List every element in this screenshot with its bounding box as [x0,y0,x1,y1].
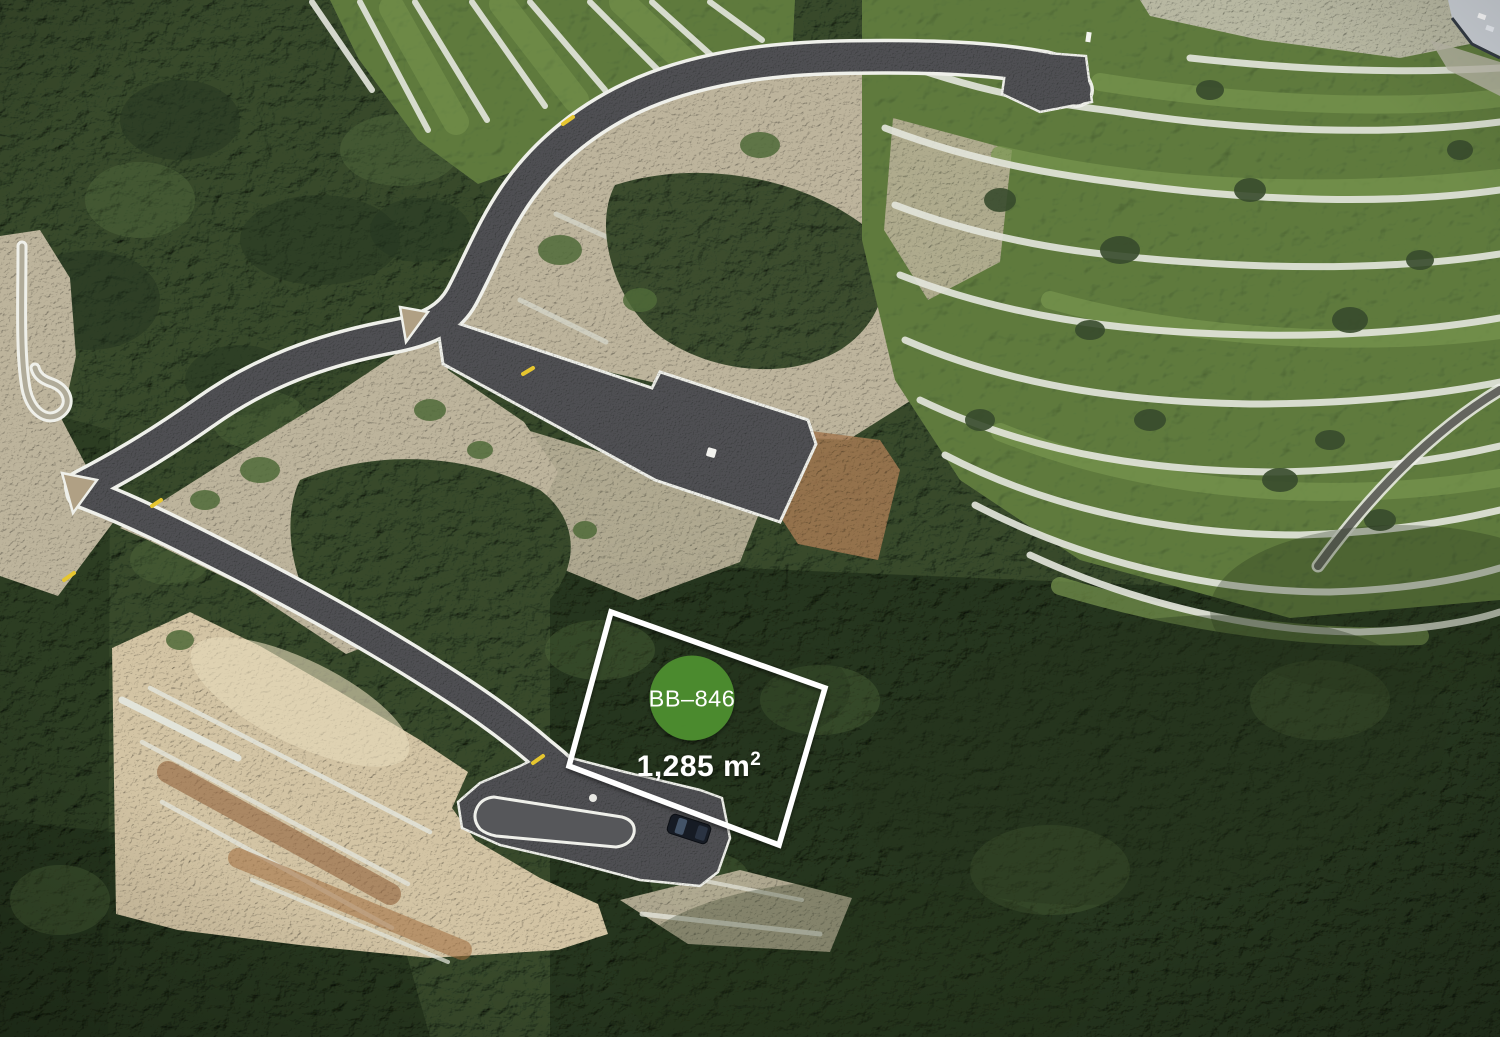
aerial-photo-canvas: BB–846 1,285 m2 [0,0,1500,1037]
plot-area-superscript: 2 [750,749,761,770]
plot-area-value: 1,285 m [637,750,751,783]
plot-id-label: BB–846 [649,686,736,712]
vignette [0,0,1500,1037]
aerial-photo-stage: BB–846 1,285 m2 [0,0,1500,1037]
plot-area-label: 1,285 m2 [637,749,762,783]
